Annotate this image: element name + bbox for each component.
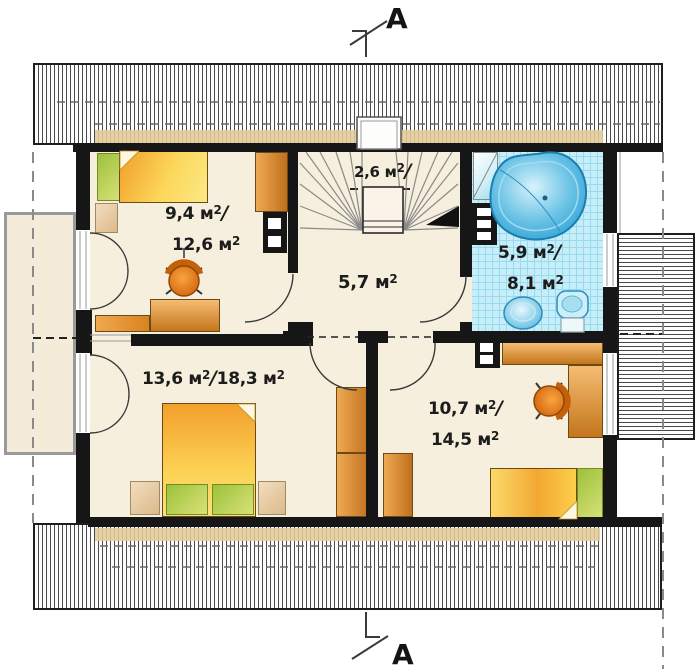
bathtub [490, 152, 586, 239]
chimney-roof-box [357, 117, 401, 149]
area-line: 8,1 м2 [507, 267, 564, 298]
door-arcs [90, 233, 466, 433]
room-label-bedroom3: 10,7 м2/ 14,5 м2 [428, 392, 503, 454]
stairs-direction-arrow [426, 206, 459, 227]
room-label-bedroom1: 9,4 м2/ 12,6 м2 [165, 197, 240, 259]
section-marker-top: A [386, 2, 408, 35]
plan-linework [0, 0, 700, 669]
section-marker-bottom: A [392, 638, 414, 669]
area-line: 9,4 м2/ [165, 197, 240, 228]
room-label-hall: 5,7 м2 [338, 266, 397, 296]
office-chair [534, 383, 567, 419]
room-label-stairs: 2,6 м2/ [354, 155, 411, 186]
area-line: 12,6 м2 [172, 228, 240, 259]
stair-landing [363, 187, 403, 233]
area-line: 5,9 м2/ [498, 236, 564, 267]
floor-plan: A A 9,4 м2/ 12,6 м2 2,6 м2/ 5,7 м2 5,9 м… [0, 0, 700, 669]
area-line: 14,5 м2 [431, 423, 503, 454]
area-line: 10,7 м2/ [428, 392, 503, 423]
room-label-bedroom2: 13,6 м2/18,3 м2 [142, 362, 285, 393]
room-label-bathroom: 5,9 м2/ 8,1 м2 [498, 236, 564, 298]
sink [504, 297, 542, 329]
